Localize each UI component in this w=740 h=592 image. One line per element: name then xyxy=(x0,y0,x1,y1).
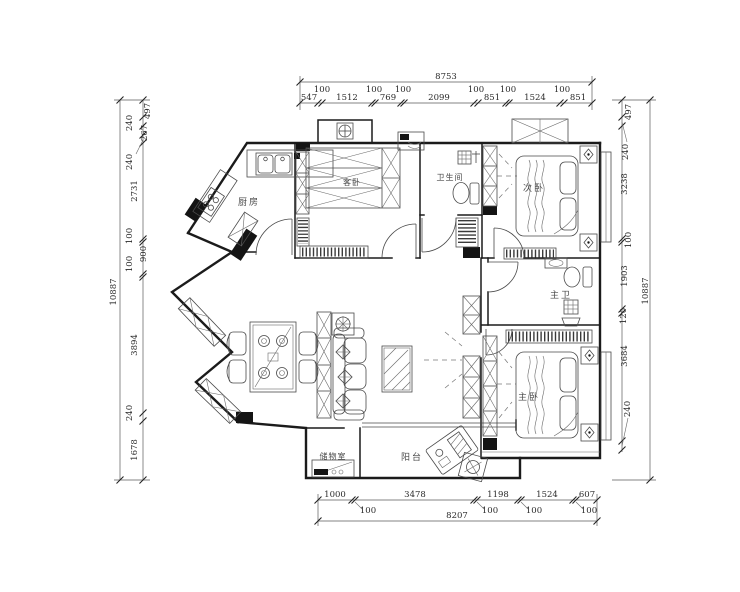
nightstand-icon xyxy=(580,234,597,251)
rug-icon xyxy=(382,346,412,392)
wardrobe-icon xyxy=(483,336,497,436)
room-label-master-bedroom: 主卧 xyxy=(518,391,540,403)
dim-value: 100 xyxy=(125,228,135,244)
dim-value: 1524 xyxy=(524,93,546,103)
sink-icon xyxy=(247,150,333,177)
dim-total-top: 8753 xyxy=(435,72,457,82)
left-dimension-chain: 10887 497 240 267 240 2731 100 900 100 3… xyxy=(109,97,153,484)
door-arc-icon xyxy=(422,218,456,252)
chair-icon xyxy=(299,332,318,355)
dim-value: 3478 xyxy=(404,490,426,500)
dim-value: 851 xyxy=(484,93,500,103)
dim-value: 240 xyxy=(125,115,135,131)
dim-value: 100 xyxy=(624,232,634,248)
dim-value: 1512 xyxy=(336,93,358,103)
floor-plan-canvas: 厨房 客卧 卫生间 次卧 主卫 主卧 储物室 阳台 8753 547 100 1… xyxy=(0,0,740,592)
door-arc-icon xyxy=(382,224,416,258)
dim-value: 100 xyxy=(125,256,135,272)
toilet-icon xyxy=(564,267,592,287)
flue-fan-icon xyxy=(337,123,353,139)
dim-value: 100 xyxy=(395,85,411,95)
chair-icon xyxy=(227,360,246,383)
dim-value: 100 xyxy=(468,85,484,95)
room-label-storage: 储物室 xyxy=(320,451,347,461)
room-label-balcony: 阳台 xyxy=(401,451,423,463)
dining-table-icon xyxy=(250,322,296,392)
plant-table-icon xyxy=(332,313,354,335)
kitchen-fixtures xyxy=(193,123,353,222)
sofa-icon xyxy=(333,328,366,420)
dim-value: 1524 xyxy=(536,490,558,500)
guest-bedroom-furniture xyxy=(296,132,424,258)
chair-icon xyxy=(227,332,246,355)
toilet-icon xyxy=(453,183,479,205)
dim-value: 267 xyxy=(140,125,150,141)
washing-machine-icon xyxy=(312,460,354,477)
desk-icon xyxy=(425,425,478,475)
nightstand-icon xyxy=(581,347,598,364)
dim-value: 1903 xyxy=(620,265,630,287)
bottom-dimension-chain: 8207 1000 100 3478 100 1198 100 1524 100… xyxy=(315,490,601,526)
shower-icon xyxy=(458,151,480,164)
sofa-wall-cabinet-icon xyxy=(317,312,331,418)
dim-value: 240 xyxy=(125,405,135,421)
door-arc-icon xyxy=(488,262,518,292)
door-arc-icon xyxy=(256,219,292,255)
dim-value: 240 xyxy=(125,154,135,170)
dim-value: 497 xyxy=(143,103,153,119)
sink-icon xyxy=(545,258,567,268)
wardrobe-icon xyxy=(296,152,309,214)
right-dimension-chain: 10887 497 240 3238 100 1903 120 3684 240 xyxy=(612,97,656,484)
floor-plan-drawing: 厨房 客卧 卫生间 次卧 主卫 主卧 储物室 阳台 8753 547 100 1… xyxy=(0,0,740,592)
dim-value: 100 xyxy=(360,506,376,516)
room-label-guest-bedroom: 客卧 xyxy=(343,177,361,187)
dim-value: 100 xyxy=(482,506,498,516)
master-bedroom-furniture xyxy=(483,330,598,441)
hall-radiator-icon xyxy=(456,218,478,247)
dim-value: 3894 xyxy=(130,334,140,356)
dim-value: 240 xyxy=(621,144,631,160)
dim-value: 607 xyxy=(579,490,595,500)
dim-value: 240 xyxy=(623,401,633,417)
room-label-master-bathroom: 主卫 xyxy=(550,289,572,301)
dim-total-right: 10887 xyxy=(641,277,651,304)
chair-icon xyxy=(299,360,318,383)
room-labels: 厨房 客卧 卫生间 次卧 主卫 主卧 储物室 阳台 xyxy=(238,172,572,463)
dim-value: 3684 xyxy=(620,345,630,367)
dim-value: 100 xyxy=(526,506,542,516)
bed-icon xyxy=(516,156,578,236)
dim-value: 1198 xyxy=(487,490,509,500)
door-arc-icon xyxy=(494,228,524,258)
dim-value: 1000 xyxy=(324,490,346,500)
room-label-kitchen: 厨房 xyxy=(238,196,260,208)
wardrobe-icon xyxy=(483,146,497,206)
dim-value: 120 xyxy=(619,308,629,324)
window-icon xyxy=(512,119,568,143)
radiator-icon xyxy=(297,218,309,246)
dim-total-bottom: 8207 xyxy=(446,511,468,521)
radiator-icon xyxy=(506,330,592,343)
dim-value: 1678 xyxy=(130,439,140,461)
dim-value: 2099 xyxy=(428,93,450,103)
dim-value: 900 xyxy=(139,246,149,262)
dim-total-left: 10887 xyxy=(109,278,119,305)
shoe-cabinet-icon xyxy=(300,246,368,258)
tv-cabinet-icon xyxy=(463,296,480,418)
dim-value: 100 xyxy=(554,85,570,95)
dim-value: 851 xyxy=(570,93,586,103)
second-bedroom-furniture xyxy=(483,146,597,259)
dim-value: 769 xyxy=(380,93,396,103)
nightstand-icon xyxy=(581,424,598,441)
dim-value: 100 xyxy=(500,85,516,95)
dim-value: 3238 xyxy=(620,173,630,195)
shower-icon xyxy=(562,300,580,326)
room-label-second-bedroom: 次卧 xyxy=(523,182,545,194)
dim-value: 100 xyxy=(314,85,330,95)
nightstand-icon xyxy=(580,146,597,163)
dim-value: 497 xyxy=(624,104,634,120)
top-dimension-chain: 8753 547 100 1512 100 769 100 2099 100 8… xyxy=(297,72,596,110)
room-label-bathroom: 卫生间 xyxy=(437,172,464,182)
dim-value: 100 xyxy=(581,506,597,516)
dim-value: 2731 xyxy=(130,180,140,202)
window-icon xyxy=(601,152,611,440)
